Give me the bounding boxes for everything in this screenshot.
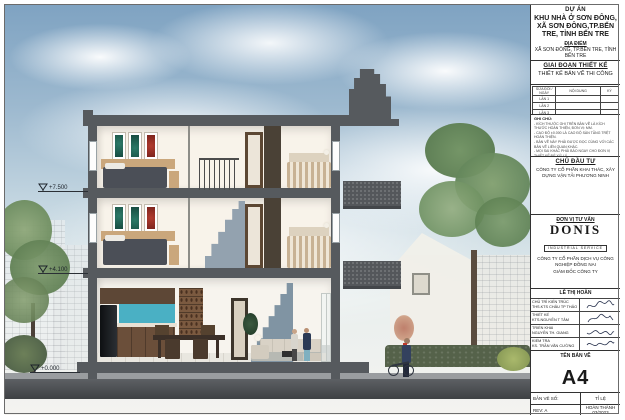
- elevation-label: +7.500: [49, 185, 68, 191]
- elevation-label: +4.100: [49, 267, 68, 273]
- floor2-art-teal-1: [113, 205, 125, 231]
- revision-row-label: LẦN 1: [533, 96, 556, 103]
- signature-mark: [585, 326, 615, 337]
- floor3-window-right: [332, 141, 340, 171]
- revision-table: SỬA ĐỔI / NGÀY NỘI DUNG KÝ LẦN 1 LẦN 2 L…: [532, 86, 619, 115]
- project-heading: DỰ ÁN: [534, 7, 617, 13]
- road: [5, 379, 530, 399]
- signature-mark: [585, 313, 615, 324]
- dining-chair-front-2: [193, 339, 208, 359]
- slab-level-2: [83, 268, 340, 278]
- revision-cell-empty: [556, 96, 600, 103]
- revision-header-content: NỘI DUNG: [556, 87, 600, 96]
- signature-row: THIẾT KẾ KTS.NGUYỄN T TÂM: [531, 311, 620, 324]
- title-block: DỰ ÁN KHU NHÀ Ở SƠN ĐÔNG, XÃ SƠN ĐÔNG,TP…: [530, 5, 620, 415]
- refrigerator: [100, 305, 117, 357]
- investor-stamp-space: [534, 178, 617, 208]
- floor3-window-left: [89, 141, 97, 171]
- signature-person: KTS.NGUYỄN T TÂM: [532, 318, 578, 323]
- project-name: KHU NHÀ Ở SƠN ĐÔNG, XÃ SƠN ĐÔNG,TP.BẾN T…: [534, 15, 617, 39]
- signature-row: TRIỂN KHAI NGUYỄN TH. GIANG: [531, 324, 620, 337]
- phase-value: THIẾT KẾ BẢN VẼ THI CÔNG: [534, 71, 617, 77]
- revision-header-sign: KÝ: [600, 87, 618, 96]
- roof-slab: [83, 115, 351, 126]
- kitchen-backsplash: [119, 304, 175, 324]
- revision-cell-empty: [556, 103, 600, 110]
- revision-header-date: SỬA ĐỔI / NGÀY: [533, 87, 556, 96]
- sofa-chaise: [251, 345, 269, 359]
- floor3-art-teal-2: [129, 133, 141, 159]
- signature-mark: [585, 300, 615, 311]
- completion-date: HOÀN THÀNH 03/2023: [580, 404, 620, 415]
- elevation-marker-7500: +7.500: [38, 182, 88, 192]
- floor2-bed-mattress: [103, 239, 167, 265]
- floor2-wardrobe: [264, 198, 281, 268]
- elevation-marker-4100: +4.100: [38, 264, 88, 274]
- location-value: XÃ SƠN ĐÔNG, TP.BẾN TRE, TỈNH BẾN TRE: [534, 47, 617, 59]
- floor3-stair-railing: [199, 158, 239, 190]
- kitchen-upper-cabinets: [100, 288, 175, 304]
- floor2-lamp: [324, 223, 329, 228]
- floor2-door: [245, 204, 263, 268]
- floor2-window-left: [89, 213, 97, 243]
- floor2-art-red: [145, 205, 157, 231]
- notes-section: GHI CHÚ: - KÍCH THƯỚC GHI TRÊN BẢN VẼ LÀ…: [531, 115, 620, 157]
- floor3-lamp: [324, 150, 329, 155]
- elevation-label: +0.000: [41, 366, 60, 372]
- investor-section: CHỦ ĐẦU TƯ CÔNG TY CỔ PHẦN KHAI THÁC, XÂ…: [531, 157, 620, 215]
- roof-overhang-right: [351, 119, 399, 126]
- footer-section: BẢN VẼ SỐ: TỈ LỆ REV: A HOÀN THÀNH 03/20…: [531, 393, 620, 415]
- dining-chair-front-1: [165, 339, 180, 359]
- floor2-partition: [188, 198, 190, 268]
- elevation-triangle-icon: [38, 265, 48, 273]
- signature-person: NGUYỄN TH. GIANG: [532, 331, 578, 336]
- floor3-bed2-blanket: [287, 162, 331, 188]
- signer-name: LÊ THỊ HOÀN: [531, 289, 620, 298]
- house-window: [412, 273, 430, 295]
- investor-company: CÔNG TY CỔ PHẦN KHAI THÁC, XÂY DỰNG VẬN …: [534, 167, 617, 178]
- dining-table-leg-2: [216, 340, 219, 358]
- consultant-stamp-space: [534, 275, 617, 290]
- drawing-sheet: +7.500 +4.100 +0.000 DỰ ÁN KHU NHÀ Ở SƠN…: [0, 0, 625, 420]
- balcony-level-3: [343, 181, 401, 209]
- glass-door: [321, 293, 331, 362]
- scale-label: TỈ LỆ: [580, 393, 620, 404]
- revision-label: REV: A: [531, 404, 580, 415]
- floor3-wardrobe: [264, 126, 281, 188]
- dining-table: [153, 335, 225, 340]
- note-line: - BẢN VẼ NÀY PHẢI ĐƯỢC ĐỌC CÙNG VỚI CÁC …: [534, 140, 617, 149]
- balcony-level-2: [343, 261, 401, 289]
- elevation-marker-0000: +0.000: [30, 363, 80, 373]
- signature-person: THS.KTS CHÂU TP THẢO: [532, 305, 578, 310]
- house-shrub-red: [394, 315, 414, 341]
- consultant-section: ĐƠN VỊ TƯ VẤN DONIS INDUSTRIAL SERVICE C…: [531, 215, 620, 289]
- project-section: DỰ ÁN KHU NHÀ Ở SƠN ĐÔNG, XÃ SƠN ĐÔNG,TP…: [531, 5, 620, 61]
- signature-mark: [585, 339, 615, 350]
- floor2-art-teal-2: [129, 205, 141, 231]
- floor2-window-right: [332, 213, 340, 243]
- signature-row: KIỂM TRA KS. TRẦN VĂN CƯỜNG: [531, 337, 620, 350]
- signature-section: LÊ THỊ HOÀN CHỦ TRÌ KIẾN TRÚC THS.KTS CH…: [531, 289, 620, 351]
- drawing-name-section: TÊN BẢN VẼ A4: [531, 351, 620, 393]
- floor3-partition: [188, 126, 190, 188]
- note-line: - CAO ĐỘ ±0.000 LÀ CAO ĐỘ SÀN TẦNG TRỆT …: [534, 131, 617, 140]
- floor3-bed-mattress: [103, 167, 167, 188]
- note-line: - MỌI SAI KHÁC PHẢI BÁO NGAY CHO ĐƠN VỊ …: [534, 149, 617, 157]
- floor2-nightstand: [169, 245, 179, 265]
- sheet-number-label: BẢN VẼ SỐ:: [531, 393, 580, 404]
- section-rendering: +7.500 +4.100 +0.000: [5, 5, 530, 415]
- consultant-company: CÔNG TY CỔ PHẦN DỊCH VỤ CÔNG NGHIỆP ĐỒNG…: [534, 256, 617, 267]
- drawing-name-heading: TÊN BẢN VẼ: [534, 353, 617, 359]
- phase-section: GIAI ĐOẠN THIẾT KẾ THIẾT KẾ BẢN VẼ THI C…: [531, 61, 620, 85]
- revision-cell-empty: [600, 103, 618, 110]
- sheet-size-label: A4: [534, 367, 617, 390]
- phase-heading: GIAI ĐOẠN THIẾT KẾ: [534, 63, 617, 69]
- revision-cell-empty: [600, 96, 618, 103]
- floor3-art-teal-1: [113, 133, 125, 159]
- signature-row: CHỦ TRÌ KIẾN TRÚC THS.KTS CHÂU TP THẢO: [531, 298, 620, 311]
- elevation-triangle-icon: [30, 364, 40, 372]
- floor3-art-red: [145, 133, 157, 159]
- floor3-nightstand: [169, 171, 179, 188]
- indoor-plant: [243, 313, 258, 335]
- bush-bright-right: [497, 347, 530, 371]
- note-line: - KÍCH THƯỚC GHI TRÊN BẢN VẼ LÀ KÍCH THƯ…: [534, 122, 617, 131]
- floor2-bed2-blanket: [287, 236, 331, 268]
- donis-logo-subtitle: INDUSTRIAL SERVICE: [544, 245, 607, 252]
- signature-person: KS. TRẦN VĂN CƯỜNG: [532, 344, 578, 349]
- revision-row-label: LẦN 2: [533, 103, 556, 110]
- floor3-door: [245, 132, 263, 188]
- background-building-far-right: [475, 255, 530, 347]
- investor-heading: CHỦ ĐẦU TƯ: [534, 159, 617, 165]
- table-row: LẦN 2: [533, 103, 619, 110]
- chimney: [349, 69, 391, 119]
- elevation-triangle-icon: [38, 183, 48, 191]
- slab-ground: [77, 362, 369, 373]
- donis-logo: DONIS: [534, 223, 617, 236]
- wine-rack: [179, 288, 203, 336]
- revision-section: SỬA ĐỔI / NGÀY NỘI DUNG KÝ LẦN 1 LẦN 2 L…: [531, 85, 620, 115]
- floor2-pillow: [105, 235, 125, 241]
- floor3-pillow: [105, 163, 125, 169]
- background-house-right: [390, 233, 474, 347]
- table-row: LẦN 1: [533, 96, 619, 103]
- dining-table-leg-1: [158, 340, 161, 358]
